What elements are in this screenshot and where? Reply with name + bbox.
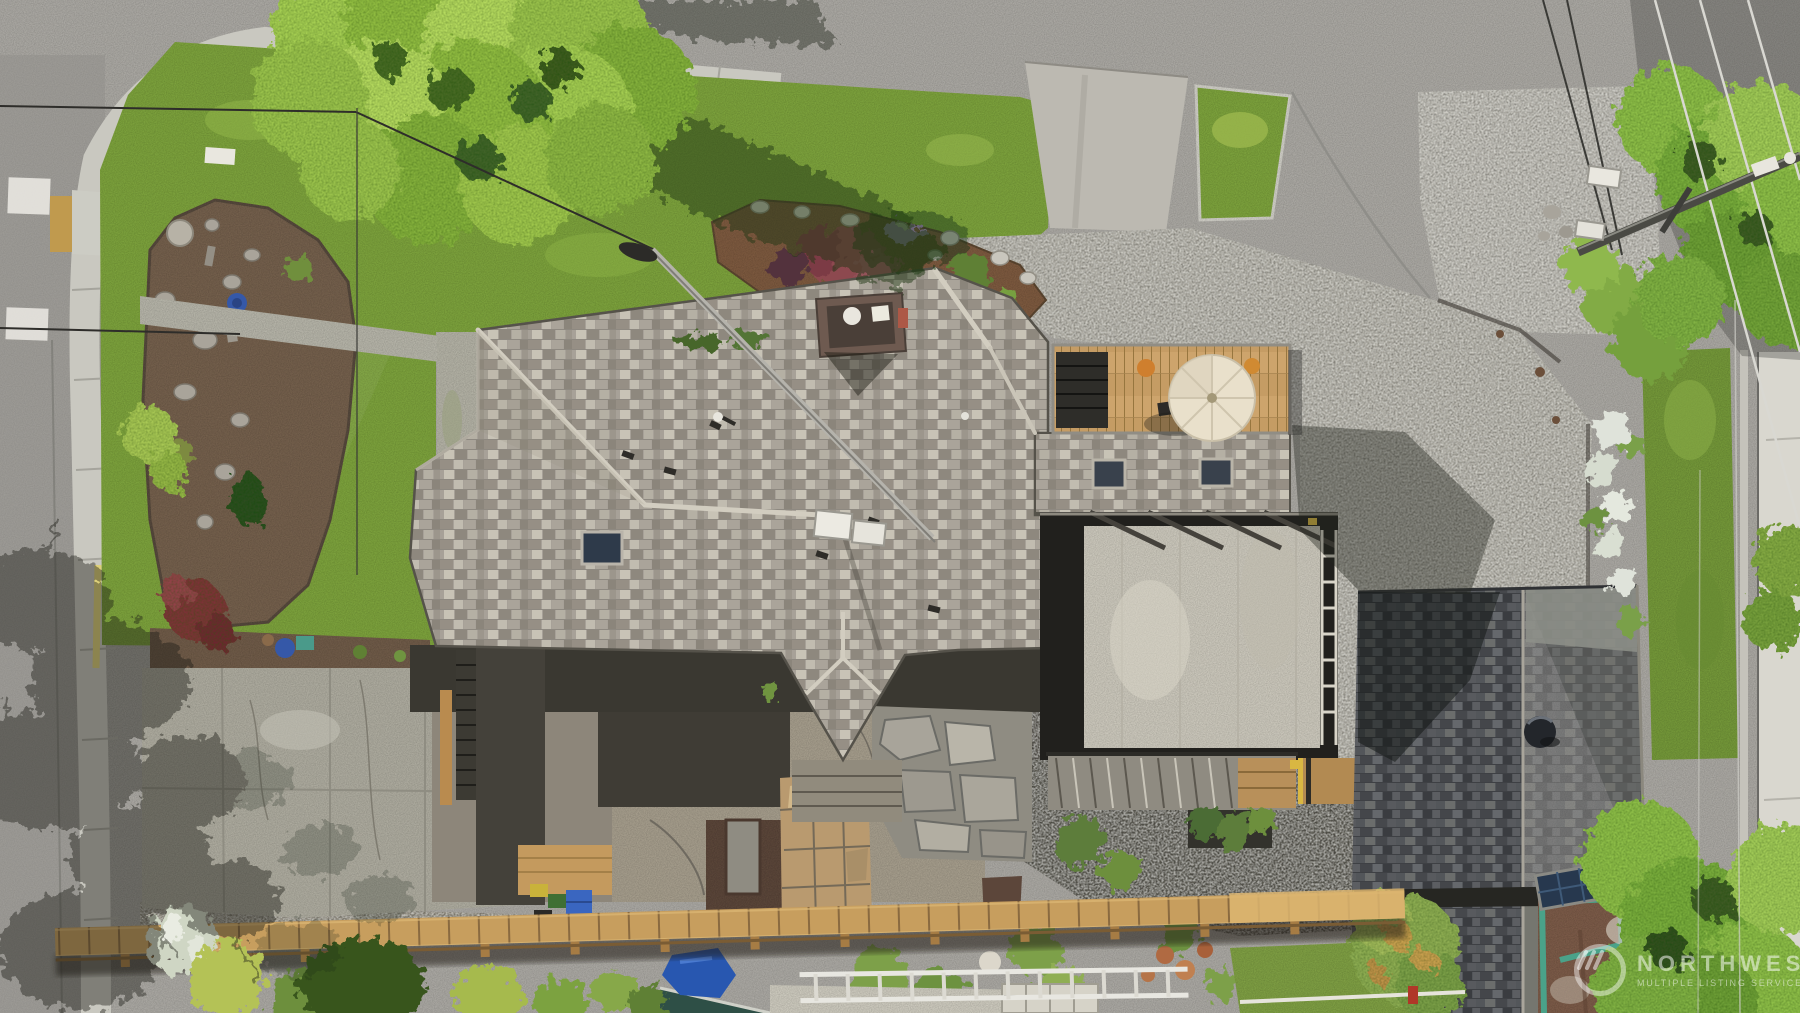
red-flue-pipe — [898, 308, 908, 328]
potted-plant — [1137, 359, 1155, 377]
red-yard-item — [1408, 986, 1418, 1004]
flat-roof — [1040, 512, 1338, 760]
aerial-photo-stage: NORTHWEST MULTIPLE LISTING SERVICE — [0, 0, 1800, 1013]
crosswalk-stripe — [5, 307, 48, 340]
chimney — [816, 293, 906, 357]
aerial-photo — [0, 0, 1800, 1013]
round-vent-cap — [843, 307, 861, 325]
garage-bridge — [1298, 758, 1360, 804]
stone-circle-paver — [167, 220, 193, 246]
rooftop-deck — [1053, 345, 1290, 441]
tactile-warning-mat — [50, 196, 72, 252]
right-parking-strip-grass — [1642, 348, 1738, 760]
square-vent-cap — [871, 305, 889, 322]
deck-dark-mat — [1056, 352, 1108, 428]
exterior-stairs — [1046, 754, 1360, 810]
rear-patio — [410, 645, 1048, 928]
crosswalk-stripe — [7, 177, 50, 214]
driveway-apron — [1025, 62, 1188, 232]
roof-section-east — [1035, 433, 1290, 513]
patio-umbrella — [1169, 355, 1255, 441]
